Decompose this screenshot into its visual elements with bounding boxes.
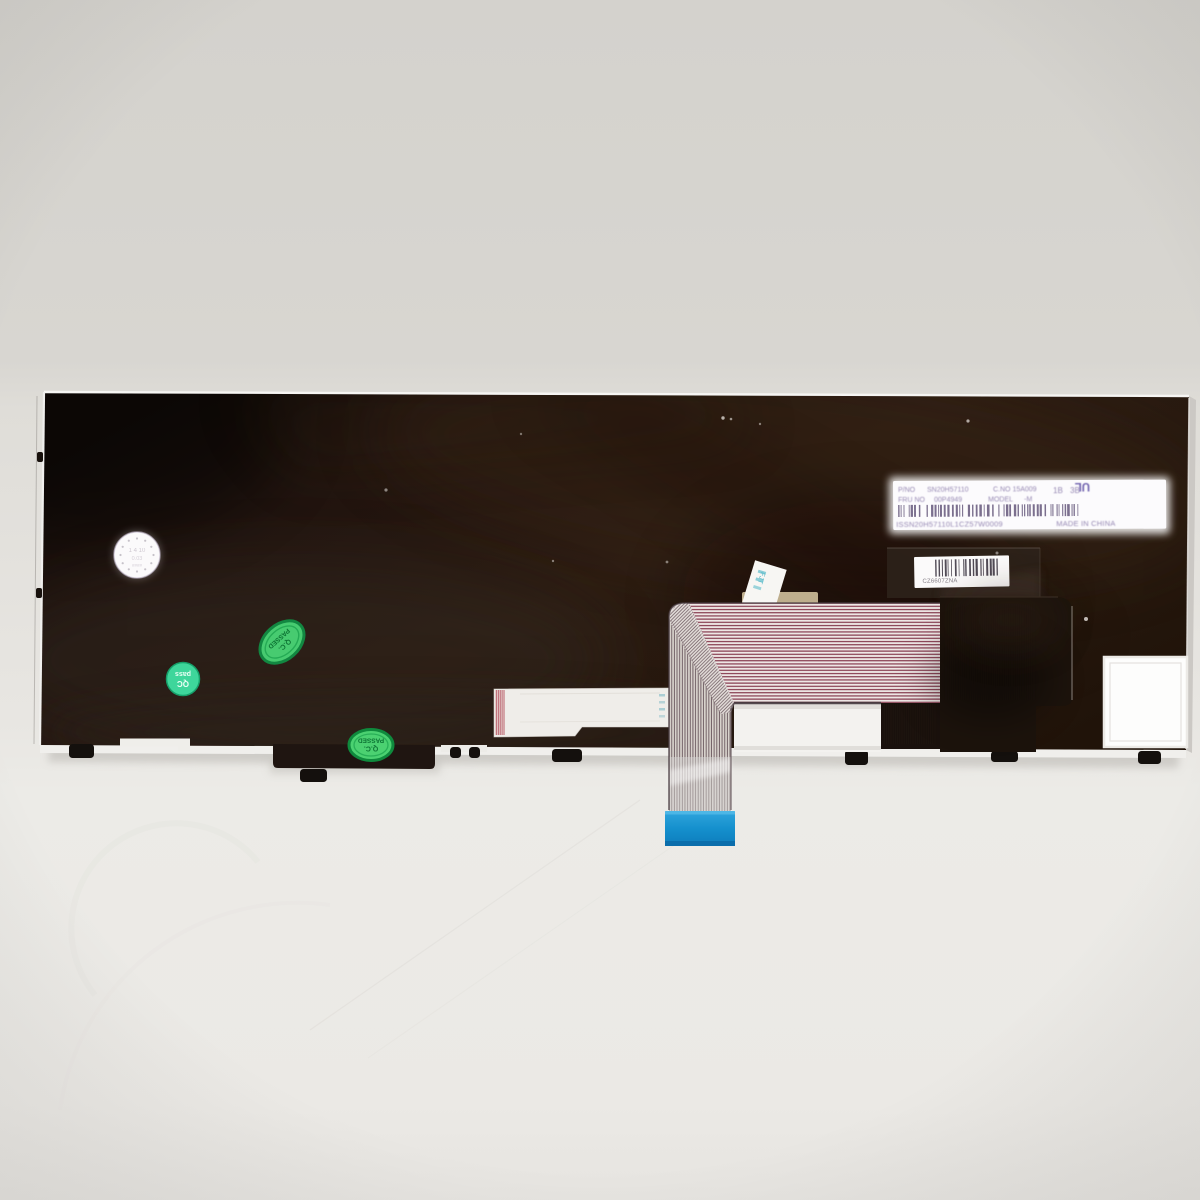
svg-text:0.03: 0.03 <box>132 556 143 562</box>
svg-text:CZ6607ZNA: CZ6607ZNA <box>922 578 957 585</box>
svg-text:-M: -M <box>1024 496 1032 503</box>
svg-text:ISSN20H57110L1CZ57W0009: ISSN20H57110L1CZ57W0009 <box>896 519 1003 529</box>
svg-text:PASSED: PASSED <box>358 737 385 744</box>
svg-text:1B: 1B <box>1053 486 1063 495</box>
svg-text:FRU NO: FRU NO <box>898 497 925 504</box>
svg-text:MADE IN CHINA: MADE IN CHINA <box>1056 519 1115 528</box>
svg-text:1 4 10: 1 4 10 <box>129 548 146 554</box>
svg-text:MODEL: MODEL <box>988 496 1013 503</box>
svg-text:00P4949: 00P4949 <box>934 497 962 504</box>
svg-text:Q.C.: Q.C. <box>364 745 378 752</box>
svg-text:SN20H57110: SN20H57110 <box>927 487 969 494</box>
svg-text:C.NO 15A009: C.NO 15A009 <box>993 486 1037 493</box>
svg-text:P/NO: P/NO <box>898 487 916 494</box>
svg-text:####: #### <box>132 563 143 568</box>
svg-text:UL: UL <box>1075 480 1090 492</box>
svg-text:pass: pass <box>175 670 191 677</box>
svg-text:QC: QC <box>177 679 189 688</box>
